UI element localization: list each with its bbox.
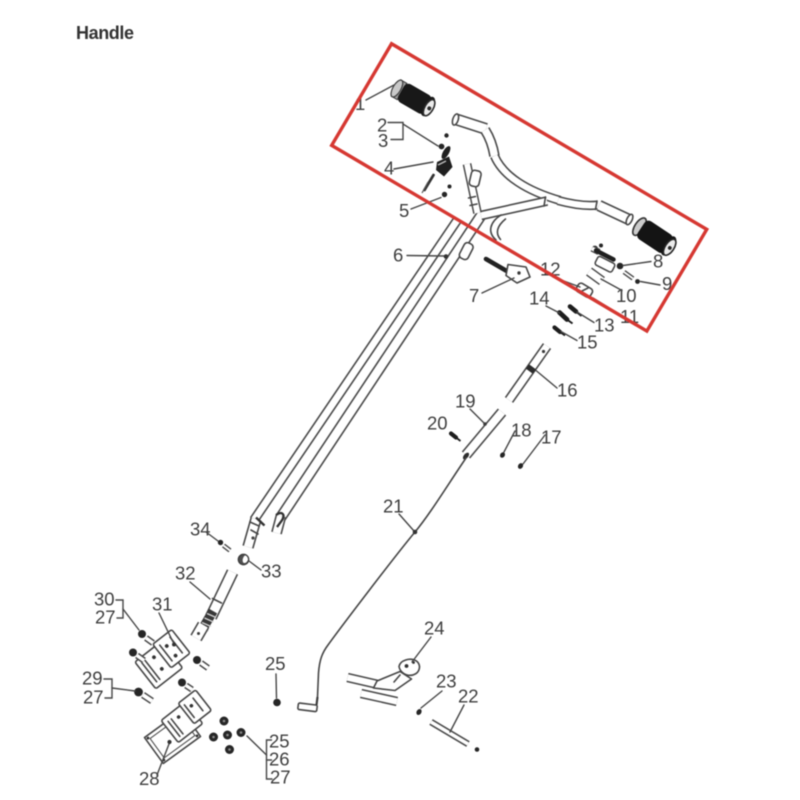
svg-text:27: 27 [83,687,104,708]
svg-text:23: 23 [436,671,457,692]
svg-text:21: 21 [383,496,404,517]
svg-text:15: 15 [577,332,598,353]
svg-text:3: 3 [378,130,388,151]
svg-text:28: 28 [139,768,160,789]
svg-text:18: 18 [511,420,532,441]
svg-text:32: 32 [175,563,196,584]
svg-text:25: 25 [265,653,286,674]
svg-text:6: 6 [393,245,403,266]
svg-text:24: 24 [424,618,445,639]
svg-text:33: 33 [261,561,282,582]
svg-text:5: 5 [399,200,409,221]
svg-text:27: 27 [95,607,116,628]
svg-text:34: 34 [190,519,211,540]
svg-text:20: 20 [427,413,448,434]
svg-text:22: 22 [458,686,479,707]
svg-text:14: 14 [529,288,550,309]
svg-text:27: 27 [270,767,291,788]
svg-text:7: 7 [469,285,479,306]
svg-text:Handle: Handle [76,23,134,43]
svg-text:29: 29 [82,668,103,689]
svg-text:8: 8 [653,251,663,272]
svg-text:31: 31 [152,594,173,615]
svg-text:16: 16 [557,380,578,401]
svg-text:19: 19 [455,391,476,412]
